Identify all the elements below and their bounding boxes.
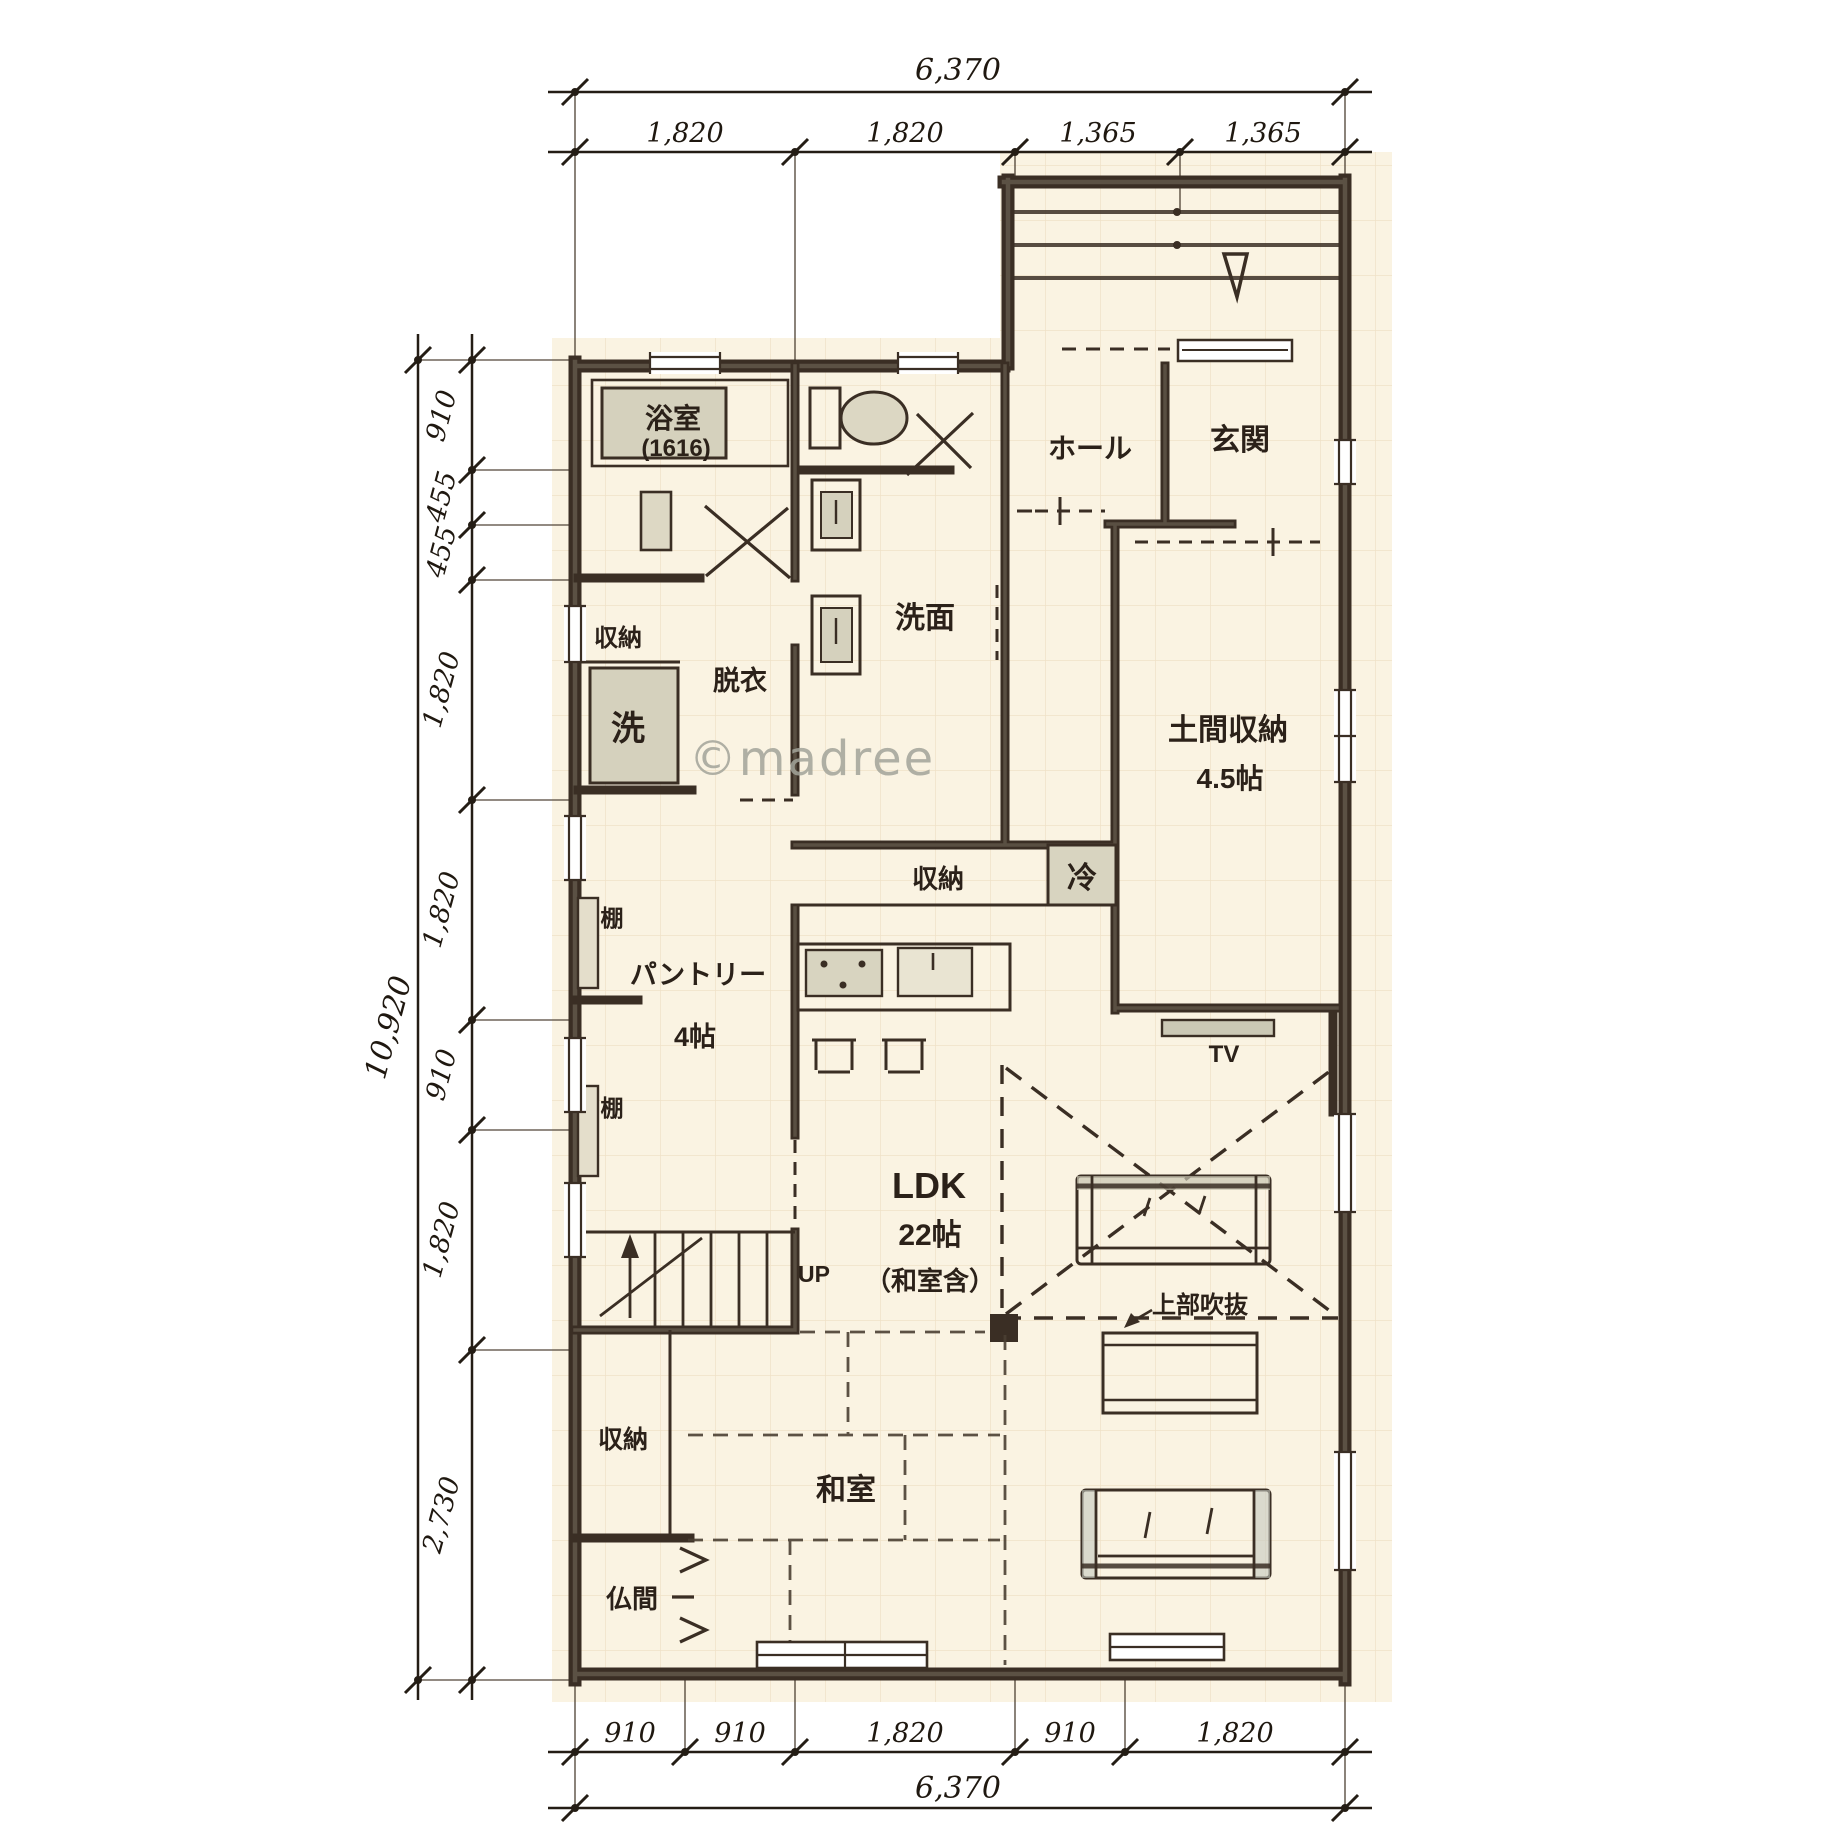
label-bath-closet: 収納 <box>594 624 642 652</box>
label-hall: ホール <box>1048 433 1132 464</box>
plan-paper <box>552 152 1392 1702</box>
label-dressing: 脱衣 <box>713 665 767 696</box>
label-pantry: パントリー <box>630 960 766 990</box>
label-entrance: 玄関 <box>1210 423 1270 457</box>
bath-door-panel <box>641 492 671 550</box>
dim-top-seg-3: 1,365 <box>1059 118 1136 149</box>
window <box>1334 1452 1356 1570</box>
paper-grid <box>552 152 1392 1702</box>
dim-left-seg-7: 1,820 <box>417 1198 467 1281</box>
window <box>898 352 958 374</box>
dim-left-seg-8: 2,730 <box>417 1473 467 1557</box>
dim-left-seg-4: 1,820 <box>417 648 467 731</box>
dim-left-seg-5: 1,820 <box>417 868 467 951</box>
label-doma-size: 4.5帖 <box>1197 763 1264 794</box>
window <box>1110 1634 1224 1660</box>
label-washer: 洗 <box>611 710 645 748</box>
label-doma: 土間収納 <box>1168 714 1288 747</box>
window <box>1334 690 1356 782</box>
dim-left-overall: 10,920 <box>358 972 419 1082</box>
dim-bottom-seg-1: 910 <box>604 1718 656 1749</box>
tv-unit <box>1162 1020 1274 1036</box>
window <box>650 352 720 374</box>
dim-top-seg-4: 1,365 <box>1224 118 1301 149</box>
window <box>564 1038 586 1112</box>
dim-bottom-seg-5: 1,820 <box>1196 1718 1273 1749</box>
pantry-shelf-upper <box>578 898 598 988</box>
dim-bottom-seg-2: 910 <box>714 1718 766 1749</box>
label-bath-size: (1616) <box>641 435 710 462</box>
label-tv: TV <box>1209 1041 1240 1068</box>
label-washroom: 洗面 <box>895 602 955 635</box>
label-bath: 浴室 <box>645 402 701 434</box>
label-void: 上部吹抜 <box>1152 1291 1249 1319</box>
label-ldk-note: （和室含） <box>865 1266 995 1296</box>
dim-top-overall: 6,370 <box>915 53 1001 88</box>
label-washitsu-closet: 収納 <box>598 1425 648 1454</box>
toilet-bowl-icon <box>841 392 907 444</box>
floor-plan-drawing: 6,370 1,820 1,820 1,365 1,365 10,920 910… <box>0 0 1847 1847</box>
dim-left-seg-1: 910 <box>420 387 463 445</box>
dim-bottom-seg-4: 910 <box>1044 1718 1096 1749</box>
dim-left-seg-3: 455 <box>420 523 464 582</box>
window <box>564 816 586 880</box>
window <box>757 1642 927 1668</box>
dim-bottom-overall: 6,370 <box>915 1771 1001 1806</box>
floor-plan-page: 6,370 1,820 1,820 1,365 1,365 10,920 910… <box>0 0 1847 1847</box>
label-up: UP <box>798 1261 830 1287</box>
window <box>1334 1114 1356 1212</box>
dim-top-seg-1: 1,820 <box>646 118 723 149</box>
label-shelf-upper: 棚 <box>601 905 624 931</box>
watermark: ©madree <box>689 731 935 787</box>
label-washitsu: 和室 <box>816 1473 876 1507</box>
window <box>564 606 586 662</box>
dim-left-seg-2: 455 <box>420 468 464 527</box>
dim-bottom-seg-3: 1,820 <box>866 1718 943 1749</box>
label-fridge: 冷 <box>1067 862 1097 895</box>
label-shelf-lower: 棚 <box>601 1095 624 1121</box>
label-ldk: LDK <box>892 1165 966 1206</box>
label-butsuma: 仏間 <box>606 1584 658 1614</box>
dim-left-seg-6: 910 <box>420 1046 463 1104</box>
stove <box>806 950 882 996</box>
label-kitchen-storage: 収納 <box>912 864 964 894</box>
label-ldk-size: 22帖 <box>898 1219 961 1252</box>
window <box>564 1183 586 1257</box>
window <box>1334 440 1356 484</box>
label-pantry-size: 4帖 <box>674 1022 716 1052</box>
dim-top-seg-2: 1,820 <box>866 118 943 149</box>
sink <box>898 948 972 996</box>
